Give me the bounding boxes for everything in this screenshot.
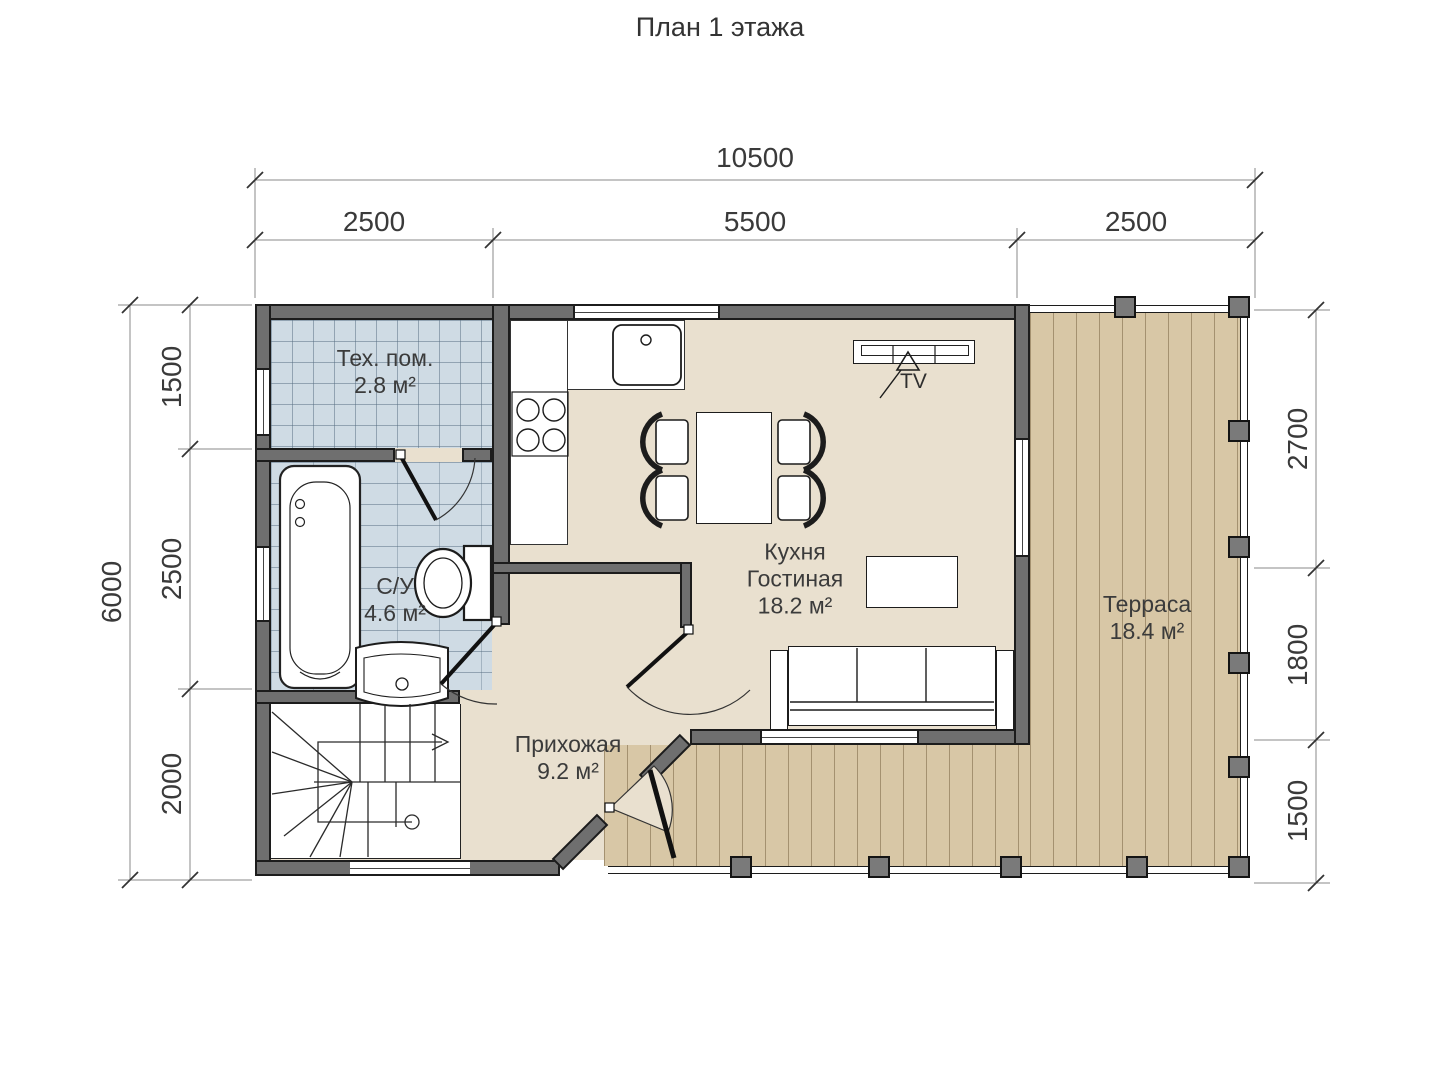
- stove: [512, 392, 568, 456]
- room-label-tech: Тех. пом. 2.8 м²: [337, 345, 434, 399]
- dim-left-seg2: 2500: [156, 538, 188, 600]
- tv-label: TV: [900, 370, 927, 394]
- room-name: С/У: [364, 573, 426, 600]
- room-area: 2.8 м²: [337, 372, 434, 399]
- page-title: План 1 этажа: [636, 12, 804, 43]
- door-arc-tech: [436, 458, 475, 520]
- dim-left-seg3: 2000: [156, 753, 188, 815]
- room-area: 4.6 м²: [364, 600, 426, 627]
- kitchen-sink: [613, 325, 681, 385]
- room-area: 18.4 м²: [1103, 618, 1191, 645]
- room-name: Терраса: [1103, 591, 1191, 618]
- room-area: 18.2 м²: [747, 593, 844, 620]
- door-arc-living: [627, 687, 750, 714]
- dim-top-seg2: 5500: [724, 206, 786, 238]
- room-name: Прихожая: [515, 731, 622, 758]
- dim-left-seg1: 1500: [156, 346, 188, 408]
- dim-top-seg1: 2500: [343, 206, 405, 238]
- dim-top-total: 10500: [716, 142, 794, 174]
- dim-right-seg2: 1800: [1282, 624, 1314, 686]
- bathroom-sink: [356, 642, 448, 706]
- toilet: [415, 546, 491, 620]
- dim-left-total: 6000: [96, 561, 128, 623]
- dining-chairs: [643, 414, 823, 526]
- room-name: Гостиная: [747, 566, 844, 593]
- room-name: Кухня: [747, 539, 844, 566]
- dim-right-seg3: 1500: [1282, 780, 1314, 842]
- floor-plan: План 1 этажа: [0, 0, 1440, 1080]
- stairs: [272, 704, 460, 857]
- room-name: Тех. пом.: [337, 345, 434, 372]
- door-arc-bath: [441, 684, 497, 704]
- dim-top-seg3: 2500: [1105, 206, 1167, 238]
- dim-right-seg1: 2700: [1282, 408, 1314, 470]
- room-label-bath: С/У 4.6 м²: [364, 573, 426, 627]
- room-area: 9.2 м²: [515, 758, 622, 785]
- bathtub: [280, 466, 360, 688]
- door-leaf-bath: [441, 622, 497, 684]
- room-label-kitchen: Кухня Гостиная 18.2 м²: [747, 539, 844, 620]
- room-label-hall: Прихожая 9.2 м²: [515, 731, 622, 785]
- door-leaf-living: [627, 630, 690, 687]
- doors: [396, 450, 750, 858]
- door-leaf-tech: [400, 455, 436, 520]
- room-label-terrace: Терраса 18.4 м²: [1103, 591, 1191, 645]
- sofa-lines: [790, 648, 994, 710]
